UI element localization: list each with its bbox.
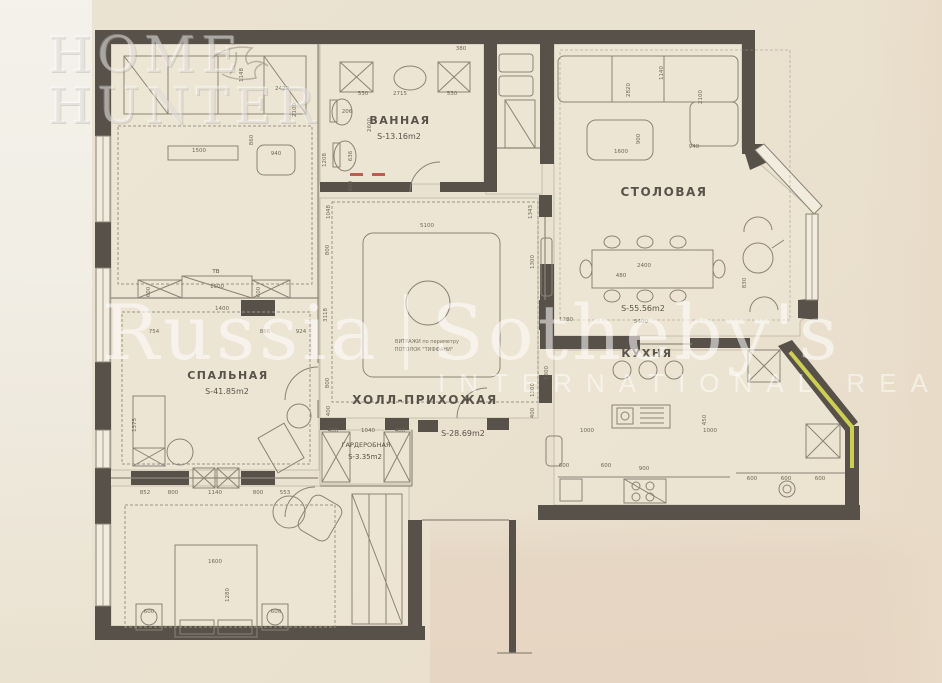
dimension-label: 3118 [323,308,329,322]
dimension-label: 1208 [322,153,328,167]
wall-top [95,30,755,44]
dimension-label: 636 [348,150,354,161]
dimension-label: 1280 [559,317,573,323]
dimension-label: 450 [702,414,708,425]
dimension-label: 1600 [208,559,222,565]
dimension-label: 600 [815,476,826,482]
dimension-label: 1048 [326,205,332,219]
dimension-label: 600 [559,463,570,469]
dimension-label: 2420 [275,86,289,92]
dimension-label: 1140 [208,490,222,496]
dimension-label: 924 [296,329,307,335]
wall-bottom-left [95,626,425,640]
dimension-label: 800 [325,244,331,255]
bedroom-label: СПАЛЬНАЯ [187,369,269,382]
dimension-label: 754 [149,329,160,335]
wall-bottom-kitchen [538,505,860,520]
dimension-label: 530 [358,91,369,97]
dimension-label: 900 [639,466,650,472]
dimension-label: 400 [395,428,406,434]
dimension-label: 1140 [659,66,665,80]
dimension-label: 1280 [225,588,231,602]
scanned-floor-plan: 5302715530206260063660012083801148242021… [0,0,942,683]
dimension-label: 1375 [132,418,138,432]
kitchen-label: КУХНЯ [621,347,672,360]
dimension-label: 2100 [698,90,704,104]
dimension-label: 1300 [530,255,536,269]
dimension-label: 1300 [530,383,536,397]
room-areas [111,44,852,626]
dimension-label: 600 [256,286,262,297]
dimension-label: 1000 [703,428,717,434]
dimension-label: 852 [140,490,151,496]
room-hall [320,198,538,418]
bathroom-area-label: S-13.16m2 [377,132,421,141]
dimension-label: 2400 [637,263,651,269]
tv-label: ТВ [211,269,219,275]
dimension-label: 1343 [528,205,534,219]
dimension-label: 600 [781,476,792,482]
dimension-label: 1400 [215,306,229,312]
dimension-label: 2100 [292,103,298,117]
dimension-label: 400 [328,428,339,434]
hall-label: ХОЛЛ-ПРИХОЖАЯ [352,393,497,407]
room-bedroom [111,298,319,470]
wall-spur [509,520,516,653]
dimension-label: 830 [742,277,748,288]
dimension-label: 800 [325,377,331,388]
dimension-label: 553 [280,490,291,496]
dimension-label: 800 [168,490,179,496]
hall-area-label: S-28.69m2 [441,429,485,438]
dimension-label: 2715 [393,91,407,97]
dimension-label: 1040 [361,428,375,434]
dimension-label: 400 [530,407,536,418]
dimension-label: 1500 [210,284,224,290]
dimension-label: 600 [271,609,282,615]
dimension-label: 206 [342,109,353,115]
dimension-label: 380 [456,46,467,52]
dimension-label: 530 [447,91,458,97]
dimension-label: 1000 [580,428,594,434]
room-bedroom2 [111,486,409,626]
dimension-label: 2820 [626,83,632,97]
red-mark-1 [350,173,363,176]
wardrobe-label: ГАРДЕРОБНАЯ [342,441,391,449]
dimension-label: 940 [689,144,700,150]
dining-area-label: S-55.56m2 [621,304,665,313]
dimension-label: 860 [249,134,255,145]
dimension-label: 1300 [544,366,550,380]
hall-note-1: ВИТРАЖИ по периметру [395,339,459,345]
dimension-label: 600 [348,180,354,191]
dimension-label: 900 [636,133,642,144]
dining-label: СТОЛОВАЯ [620,185,707,199]
bathroom-label: ВАННАЯ [369,114,430,127]
dimension-label: 800 [253,490,264,496]
dimension-label: 5400 [634,319,648,325]
dimension-label: 480 [616,273,627,279]
dimension-label: 600 [747,476,758,482]
dimension-label: 400 [326,405,332,416]
floor-plan-svg: 5302715530206260063660012083801148242021… [0,0,942,683]
red-mark-2 [372,173,385,176]
dimension-label: 1600 [614,149,628,155]
wardrobe-area-label: S-3.35m2 [348,453,382,461]
dimension-label: 940 [271,151,282,157]
wall-bedroom2-right [408,520,422,640]
dimension-label: 600 [144,609,155,615]
room-cabinet [111,44,319,298]
dimension-label: 5100 [420,223,434,229]
dimension-label: 600 [146,286,152,297]
dimension-label: 1500 [192,148,206,154]
bedroom-area-label: S-41.85m2 [205,387,249,396]
dimension-label: 866 [260,329,271,335]
hall-note-2: ПОТОЛОК "ТИФФАНИ" [395,347,453,353]
dimension-label: 600 [601,463,612,469]
